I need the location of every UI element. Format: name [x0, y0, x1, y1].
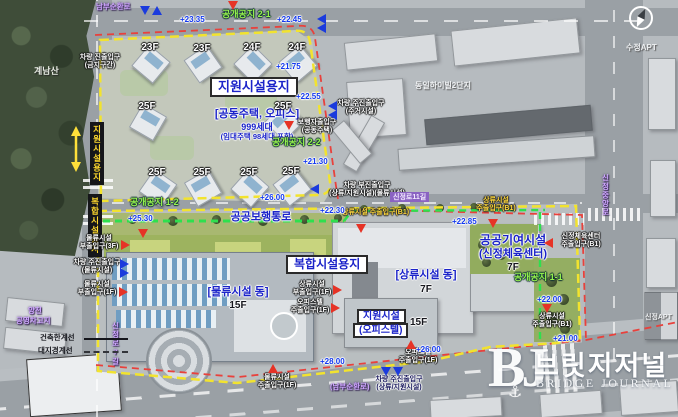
neighbor-building	[539, 390, 603, 417]
vehicle-entrance-marker	[317, 23, 326, 33]
tower-floors-label: 24F	[237, 42, 267, 54]
pedestrian-entrance-marker	[356, 224, 366, 233]
elevation-label: +22.55	[296, 92, 321, 101]
entrance-line: (공동주택)	[302, 127, 332, 134]
pedestrian-entrance-marker	[284, 121, 294, 130]
entrance-label: 상류시설 주출입구(B1)	[528, 313, 576, 329]
elevation-label: +21.30	[303, 157, 328, 166]
pedestrian-entrance-marker	[268, 364, 278, 373]
public-block-name2: (신정체육센터)	[462, 248, 564, 261]
entrance-line: (상류/지원시설)	[376, 384, 421, 391]
road-name-r11: 신정로11길	[390, 192, 429, 202]
tower-floors-label: 25F	[276, 166, 306, 178]
entrance-line: 물류시설	[86, 235, 112, 242]
road-name-jungang: 신정중앙로	[600, 174, 611, 217]
logistics-roof-stripes	[116, 310, 216, 328]
entrance-label: 물류시설 부출입구(3F)	[78, 235, 120, 251]
elevation-label: +26.00	[260, 193, 285, 202]
entrance-label: 차량 주진출입구 (물류시설)	[72, 259, 122, 275]
support-block-floors: 15F	[410, 317, 427, 329]
entrance-line: 주출입구(B1)	[561, 241, 600, 248]
entrance-line: 부출입구(1F)	[293, 289, 332, 296]
crosswalk	[588, 208, 640, 221]
entrance-label: 차량 진출입구 (금지구간)	[76, 54, 124, 70]
helipad-circle	[270, 312, 298, 340]
pedestrian-entrance-marker	[119, 287, 128, 297]
entrance-label: 차량 주진출입구 (주거시설)	[336, 100, 386, 116]
entrance-line: 차량 주진출입구	[337, 100, 384, 107]
tower-floors-label: 24F	[282, 42, 312, 54]
entrance-line: 주출입구(1F)	[258, 382, 297, 389]
elevation-label: +22.30	[320, 206, 345, 215]
tower-floors-label: 23F	[187, 43, 217, 55]
elevation-label: +22.00	[537, 295, 562, 304]
entrance-line: 물류시설	[84, 281, 110, 288]
entrance-label: 상류시설 부출입구(1F)	[291, 281, 333, 297]
entrance-label: 신정체육센터 주출입구(B1)	[553, 233, 609, 249]
vehicle-entrance-marker	[328, 110, 337, 120]
compass-icon	[628, 5, 654, 36]
entrance-line: 차량 부진출입구	[343, 182, 390, 189]
pedestrian-entrance-marker	[544, 238, 553, 248]
entrance-line: 물류시설	[264, 374, 290, 381]
tree	[168, 216, 178, 226]
pedestrian-entrance-marker	[542, 304, 552, 313]
legend-building-limit: 건축한계선	[40, 334, 75, 343]
elevation-label: +22.85	[452, 217, 477, 226]
logistics-roof-stripes	[112, 258, 230, 280]
tower-floors-label: 25F	[268, 101, 298, 113]
entrance-line: 부출입구(3F)	[80, 243, 119, 250]
commerce-block-floors: 7F	[383, 284, 469, 296]
elevation-label: +26.00	[416, 345, 441, 354]
entrance-line: 주출입구(B1)	[532, 321, 571, 328]
tower-floors-label: 25F	[234, 167, 264, 179]
watermark-english: BRIDGE JOURNAL	[536, 376, 673, 391]
road-name-r7: 신정로7길	[110, 322, 121, 366]
entrance-line: 주출입구(1F)	[399, 357, 438, 364]
neighbor-building	[646, 238, 676, 288]
open-space-2-2-label: 공개공지 2-2	[272, 137, 321, 147]
entrance-label: 보행자출입구 (공동주택)	[294, 119, 340, 135]
pedestrian-entrance-marker	[121, 240, 130, 250]
anchor-icon: ⚓	[508, 382, 522, 402]
entrance-line: 신정체육센터	[562, 233, 601, 240]
elevation-label: +23.35	[180, 15, 205, 24]
entrance-line: 보행자출입구	[298, 119, 337, 126]
open-space-2-1-label: 공개공지 2-1	[222, 9, 271, 19]
entrance-label: 상류시설 주출입구(B1)	[342, 209, 409, 217]
road-name-bottom: (남부순환로)	[330, 381, 370, 392]
entrance-line: 상류시설	[299, 281, 325, 288]
entrance-line: 부출입구(1F)	[78, 289, 117, 296]
neighbor-complex-label: 동일하이빌2단지	[415, 81, 471, 90]
logistics-block-floors: 15F	[195, 300, 281, 312]
entrance-line: 차량 진출입구	[80, 54, 121, 61]
lane-dashes	[84, 20, 644, 22]
pedestrian-entrance-marker	[228, 1, 238, 10]
entrance-line: 차량 주진출입구	[73, 259, 120, 266]
entrance-line: (금지구간)	[85, 62, 115, 69]
elevation-label: +21.00	[553, 334, 578, 343]
courtyard-green	[150, 136, 194, 160]
pedestrian-entrance-marker	[331, 303, 340, 313]
logistics-block-name: [물류시설 동]	[195, 286, 281, 299]
legend-building-limit-line	[84, 338, 128, 340]
neighbor-building	[648, 58, 676, 130]
entrance-line: 주출입구(1F)	[291, 307, 330, 314]
neighbor-building	[344, 33, 438, 70]
crosswalk	[534, 213, 584, 225]
vehicle-entrance-marker	[152, 6, 162, 15]
site-plan-screenshot: 지원시설용지 [공동주택, 오피스] 999세대 (임대주택 98세대 포함) …	[0, 0, 678, 417]
vehicle-entrance-marker	[120, 268, 129, 278]
pedestrian-entrance-marker	[333, 285, 342, 295]
zone-title-mixed: 복합시설용지	[286, 255, 368, 274]
entrance-line: 상류시설 주출입구(B1)	[342, 209, 409, 216]
road-name-top: 남부순환로	[96, 1, 131, 12]
entrance-line: (물류시설)	[82, 267, 112, 274]
tree	[436, 204, 444, 212]
open-space-1-2-label: 공개공지 1-2	[130, 197, 179, 207]
legend-site-boundary-line	[84, 351, 128, 353]
neighbor-building	[650, 160, 676, 217]
pedestrian-entrance-marker	[138, 229, 148, 238]
forest	[0, 0, 96, 256]
entrance-line: 주출입구(B1)	[476, 205, 515, 212]
mountain-label: 계남산	[34, 66, 59, 76]
tree	[334, 214, 342, 222]
elevation-label: +22.45	[277, 15, 302, 24]
entrance-line: (주거시설)	[346, 108, 376, 115]
vehicle-entrance-marker	[381, 367, 391, 376]
support-block-name2: (오피스텔)	[353, 323, 408, 338]
entrance-line: 차량 주진출입구	[375, 376, 422, 383]
elevation-label: +28.00	[320, 357, 345, 366]
pedestrian-entrance-marker	[488, 219, 498, 228]
entrance-label: 상류시설 주출입구(B1)	[472, 197, 520, 213]
entrance-label: 물류시설 부출입구(1F)	[76, 281, 118, 297]
tower-floors-label: 25F	[187, 167, 217, 179]
entrance-label: 물류시설 주출입구(1F)	[255, 374, 299, 390]
vehicle-entrance-marker	[310, 184, 319, 194]
edge-tag-residential: 지원시설용지	[90, 122, 104, 185]
entrance-label: 오피스텔 주출입구(1F)	[289, 299, 331, 315]
elevation-label: +21.75	[276, 62, 301, 71]
open-space-1-1-label: 공개공지 1-1	[514, 272, 563, 282]
support-block-name: 지원시설	[357, 309, 406, 324]
entrance-line: 오피스텔	[297, 299, 323, 306]
vehicle-entrance-marker	[393, 367, 403, 376]
public-walkway-label: 공공보행통로	[210, 211, 312, 224]
commerce-block-name: [상류시설 동]	[383, 269, 469, 282]
spiral-ramp	[146, 328, 212, 394]
pedestrian-entrance-marker	[406, 340, 416, 349]
legend-site-boundary: 대지경계선	[38, 347, 73, 356]
neighbor-apt-label: 수정APT	[626, 43, 657, 52]
zone-title-residential: 지원시설용지	[210, 77, 298, 97]
tower-floors-label: 25F	[132, 101, 162, 113]
tower-floors-label: 25F	[142, 167, 172, 179]
entrance-label: 차량 주진출입구 (상류/지원시설)	[371, 376, 427, 392]
garage-label-line2: 공영차고지	[16, 315, 51, 326]
entrance-line: 상류시설	[483, 197, 509, 204]
entrance-line: 상류시설	[539, 313, 565, 320]
neighbor-apt-label: 신정APT	[645, 314, 672, 322]
lane-dashes	[613, 0, 615, 360]
vehicle-entrance-marker	[140, 6, 150, 15]
tower-floors-label: 23F	[135, 42, 165, 54]
elevation-label: +25.30	[128, 214, 153, 223]
